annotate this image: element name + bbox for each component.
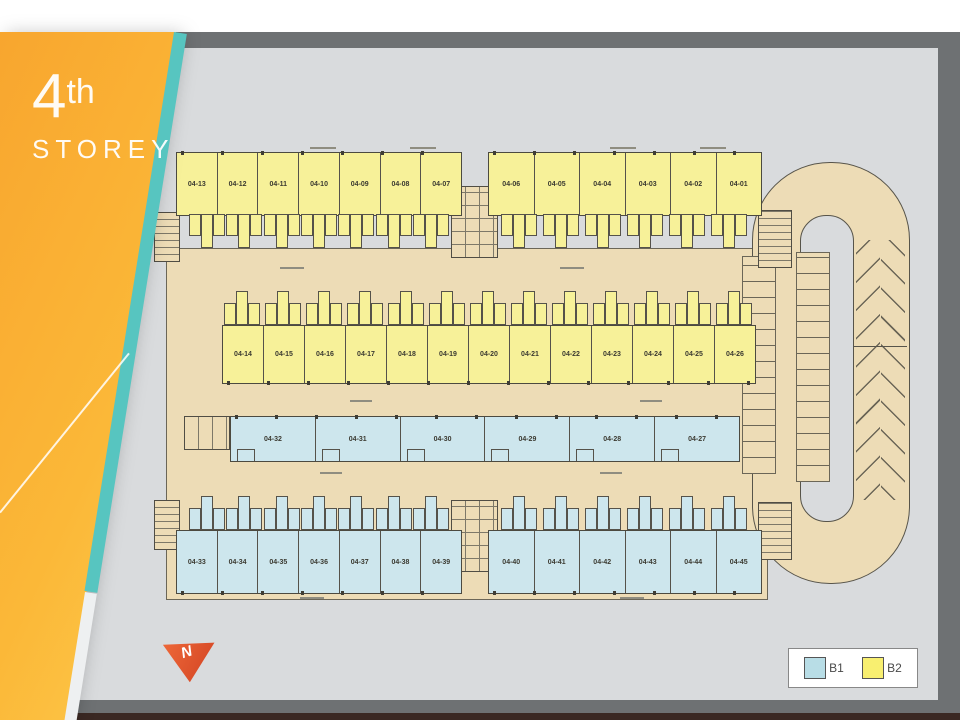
unit-cell: 04-08 [380,153,421,215]
unit-label: 04-20 [480,351,498,358]
ledge-box [687,291,699,325]
ledge-cluster [413,214,450,248]
ledge-box [413,508,425,530]
wall-tick-marks [181,591,457,595]
unit-label: 04-19 [439,351,457,358]
ledge-cluster [338,497,375,530]
unit-label: 04-05 [548,181,566,188]
ledge-box [248,303,260,325]
ledge-box [605,291,617,325]
ledge-box [585,508,597,530]
ledge-box [441,291,453,325]
unit-step-detail [322,449,340,461]
unit-label: 04-42 [593,559,611,566]
unit-label: 04-23 [603,351,621,358]
unit-cell: 04-45 [716,531,762,593]
wall-tick-marks [181,151,457,155]
ledge-box [277,291,289,325]
unit-label: 04-01 [730,181,748,188]
unit-label: 04-30 [434,436,452,443]
ledge-cluster [263,214,300,248]
ledge-box [543,508,555,530]
unit-label: 04-43 [639,559,657,566]
unit-cell: 04-18 [386,326,427,383]
ledge-box [238,214,250,248]
unit-label: 04-18 [398,351,416,358]
ledge-box [597,496,609,530]
ledge-cluster [508,292,549,325]
unit-label: 04-26 [726,351,744,358]
ledge-box [669,508,681,530]
unit-cell: 04-32 [231,417,315,461]
ledge-box [735,214,747,236]
unit-label: 04-34 [229,559,247,566]
legend-label: B2 [887,661,902,675]
ledge-cluster [263,292,304,325]
ledge-cluster [666,497,708,530]
parking-column [796,252,830,482]
unit-label: 04-12 [229,181,247,188]
ledge-cluster [375,214,412,248]
ledge-box [564,291,576,325]
ledge-box [350,496,362,530]
ledge-cluster [549,292,590,325]
ledge-box [276,496,288,530]
b2-color-swatch [862,657,884,679]
ledge-box [552,303,564,325]
ledge-box [437,508,449,530]
ledge-box [347,303,359,325]
wall-tick-marks [493,151,757,155]
ledge-box [543,214,555,236]
ledge-box [376,508,388,530]
unit-cell: 04-03 [625,153,671,215]
ledge-box [359,291,371,325]
annotation-mark [320,472,342,474]
ledge-box [226,508,238,530]
ledge-box [693,508,705,530]
unit-cell: 04-36 [298,531,339,593]
ledge-box [388,214,400,248]
ledge-cluster [263,497,300,530]
annotation-mark [300,597,324,599]
legend-item-b2: B2 [862,657,902,679]
unit-cell: 04-02 [670,153,716,215]
ledge-box [429,303,441,325]
unit-cell: 04-23 [591,326,632,383]
ledge-box [693,214,705,236]
ledge-box [412,303,424,325]
ledge-cluster [300,497,337,530]
unit-cell: 04-34 [217,531,258,593]
ledge-box [699,303,711,325]
ledge-box [264,214,276,236]
unit-step-detail [237,449,255,461]
unit-cell: 04-24 [632,326,673,383]
ledge-box [525,508,537,530]
ledge-box [511,303,523,325]
ledge-box [437,214,449,236]
ledge-box [289,303,301,325]
ledge-box [470,303,482,325]
unit-label: 04-37 [351,559,369,566]
unit-cell: 04-10 [298,153,339,215]
ledge-box [651,214,663,236]
unit-label: 04-40 [502,559,520,566]
ledge-cluster [582,497,624,530]
ledge-box [226,214,238,236]
storey-title: 4th STOREY [32,66,174,165]
ledge-cluster [338,214,375,248]
unit-label: 04-31 [349,436,367,443]
ledge-strip [498,214,750,248]
ledge-box [388,496,400,530]
unit-cell: 04-39 [420,531,461,593]
unit-label: 04-28 [603,436,621,443]
storey-number: 4th [32,66,174,128]
ledge-box [276,214,288,248]
unit-row-4-right: 04-4004-4104-4204-4304-4404-45 [488,530,762,594]
unit-label: 04-24 [644,351,662,358]
ledge-box [400,508,412,530]
ledge-box [350,214,362,248]
ledge-box [617,303,629,325]
unit-cell: 04-14 [223,326,263,383]
ledge-cluster [540,214,582,248]
unit-row-1-right: 04-0604-0504-0404-0304-0204-01 [488,152,762,216]
ledge-cluster [708,214,750,248]
unit-label: 04-22 [562,351,580,358]
unit-label: 04-39 [432,559,450,566]
unit-label: 04-45 [730,559,748,566]
ledge-box [413,214,425,236]
annotation-mark [410,147,436,149]
ledge-box [362,214,374,236]
ledge-box [675,303,687,325]
unit-cell: 04-19 [427,326,468,383]
unit-step-detail [661,449,679,461]
ledge-box [224,303,236,325]
unit-label: 04-08 [392,181,410,188]
unit-cell: 04-17 [345,326,386,383]
ledge-cluster [222,292,263,325]
unit-cell: 04-25 [673,326,714,383]
wall-tick-marks [227,381,751,385]
ledge-box [585,214,597,236]
ledge-box [646,291,658,325]
floorplan-page: 04-1304-1204-1104-1004-0904-0804-07 04-0… [0,0,960,720]
ledge-box [627,214,639,236]
annotation-mark [610,147,636,149]
ledge-box [313,214,325,248]
ledge-cluster [413,497,450,530]
ledge-box [236,291,248,325]
ledge-cluster [666,214,708,248]
ledge-box [513,496,525,530]
ledge-cluster [225,497,262,530]
unit-cell: 04-16 [304,326,345,383]
storey-word: STOREY [32,134,174,165]
unit-label: 04-02 [684,181,702,188]
unit-label: 04-38 [392,559,410,566]
ledge-box [567,508,579,530]
ledge-box [723,214,735,248]
unit-cell: 04-35 [257,531,298,593]
ledge-box [711,508,723,530]
annotation-mark [350,400,372,402]
unit-cell: 04-30 [400,417,485,461]
unit-cell: 04-11 [257,153,298,215]
unit-cell: 04-06 [489,153,534,215]
unit-label: 04-29 [518,436,536,443]
ledge-strip [188,497,450,530]
unit-cell: 04-20 [468,326,509,383]
annotation-mark [620,597,644,599]
ledge-cluster [498,497,540,530]
ledge-box [313,496,325,530]
staircase-right-top [758,210,792,268]
ledge-box [238,496,250,530]
unit-cell: 04-05 [534,153,580,215]
unit-label: 04-32 [264,436,282,443]
ledge-box [651,508,663,530]
annotation-mark [640,400,662,402]
ledge-strip [188,214,450,248]
wall-tick-marks [235,415,735,419]
ledge-box [338,214,350,236]
unit-label: 04-11 [270,181,288,188]
unit-label: 04-44 [684,559,702,566]
unit-row-2: 04-1404-1504-1604-1704-1804-1904-2004-21… [222,325,756,384]
unit-label: 04-27 [688,436,706,443]
ledge-box [250,508,262,530]
unit-cell: 04-43 [625,531,671,593]
ledge-box [338,508,350,530]
unit-label: 04-21 [521,351,539,358]
unit-cell: 04-26 [714,326,755,383]
ledge-box [669,214,681,236]
ledge-cluster [590,292,631,325]
ledge-box [250,214,262,236]
wall-tick-marks [493,591,757,595]
ledge-box [681,496,693,530]
ramp-divider-line [853,346,907,347]
ledge-box [523,291,535,325]
ledge-box [288,214,300,236]
unit-cell: 04-28 [569,417,654,461]
ledge-box [740,303,752,325]
ledge-box [330,303,342,325]
storey-suffix: th [66,73,94,111]
ledge-box [658,303,670,325]
ledge-box [639,496,651,530]
unit-label: 04-10 [310,181,328,188]
unit-cell: 04-12 [217,153,258,215]
ledge-box [371,303,383,325]
unit-cell: 04-27 [654,417,739,461]
ledge-cluster [498,214,540,248]
unit-label: 04-41 [548,559,566,566]
ledge-cluster [468,292,509,325]
unit-label: 04-07 [432,181,450,188]
ledge-box [325,508,337,530]
ledge-box [728,291,740,325]
unit-label: 04-25 [685,351,703,358]
ledge-box [513,214,525,248]
unit-label: 04-06 [502,181,520,188]
ledge-cluster [582,214,624,248]
legend-item-b1: B1 [804,657,844,679]
unit-step-detail [407,449,425,461]
ledge-box [567,214,579,236]
ledge-box [609,508,621,530]
unit-label: 04-15 [275,351,293,358]
ledge-box [325,214,337,236]
ledge-box [555,496,567,530]
unit-label: 04-16 [316,351,334,358]
annotation-mark [560,267,584,269]
ledge-cluster [672,292,713,325]
annotation-mark [600,472,622,474]
unit-cell: 04-22 [550,326,591,383]
ledge-box [301,214,313,236]
ledge-cluster [300,214,337,248]
legend: B1 B2 [788,648,918,688]
unit-cell: 04-42 [579,531,625,593]
unit-step-detail [576,449,594,461]
ledge-box [362,508,374,530]
unit-label: 04-04 [593,181,611,188]
ledge-box [376,214,388,236]
ledge-box [494,303,506,325]
ledge-box [735,508,747,530]
annotation-mark [310,147,336,149]
ledge-box [425,496,437,530]
unit-label: 04-14 [234,351,252,358]
ledge-box [681,214,693,248]
unit-cell: 04-09 [339,153,380,215]
ledge-box [535,303,547,325]
ledge-cluster [427,292,468,325]
ledge-cluster [304,292,345,325]
ledge-box [264,508,276,530]
unit-row-3: 04-3204-3104-3004-2904-2804-27 [230,416,740,462]
ledge-cluster [345,292,386,325]
ledge-box [634,303,646,325]
ledge-box [400,214,412,236]
annotation-mark [700,147,726,149]
legend-label: B1 [829,661,844,675]
ledge-cluster [708,497,750,530]
unit-cell: 04-31 [315,417,400,461]
ledge-box [288,508,300,530]
unit-cell: 04-21 [509,326,550,383]
ledge-cluster [624,497,666,530]
ledge-box [501,214,513,236]
unit-cell: 04-40 [489,531,534,593]
ledge-box [425,214,437,248]
ledge-box [301,508,313,530]
ledge-strip [222,292,754,325]
ledge-box [576,303,588,325]
unit-label: 04-36 [310,559,328,566]
ledge-cluster [540,497,582,530]
ledge-box [593,303,605,325]
ledge-box [265,303,277,325]
ledge-box [306,303,318,325]
unit-cell: 04-37 [339,531,380,593]
unit-cell: 04-38 [380,531,421,593]
ledge-box [525,214,537,236]
unit-cell: 04-07 [420,153,461,215]
ledge-cluster [713,292,754,325]
unit-label: 04-03 [639,181,657,188]
unit-cell: 04-41 [534,531,580,593]
ledge-box [711,214,723,236]
unit-step-detail [491,449,509,461]
annotation-mark [280,267,304,269]
ledge-box [318,291,330,325]
ledge-box [388,303,400,325]
ledge-strip [498,497,750,530]
ramp-chevron-markings [881,240,905,500]
unit-cell: 04-44 [670,531,716,593]
ledge-cluster [624,214,666,248]
ledge-box [597,214,609,248]
ledge-box [716,303,728,325]
ledge-box [609,214,621,236]
b1-color-swatch [804,657,826,679]
ledge-box [639,214,651,248]
ledge-box [482,291,494,325]
ledge-cluster [631,292,672,325]
unit-cell: 04-01 [716,153,762,215]
unit-label: 04-35 [269,559,287,566]
ledge-cluster [386,292,427,325]
ledge-box [723,496,735,530]
unit-label: 04-09 [351,181,369,188]
unit-label: 04-17 [357,351,375,358]
ledge-box [627,508,639,530]
ledge-cluster [225,214,262,248]
ledge-box [501,508,513,530]
ledge-cluster [375,497,412,530]
unit-cell: 04-04 [579,153,625,215]
unit-cell: 04-29 [484,417,569,461]
ledge-box [453,303,465,325]
unit-cell: 04-15 [263,326,304,383]
ledge-box [400,291,412,325]
ramp-chevron-markings [856,240,880,500]
staircase-right-bottom [758,502,792,560]
ledge-box [555,214,567,248]
